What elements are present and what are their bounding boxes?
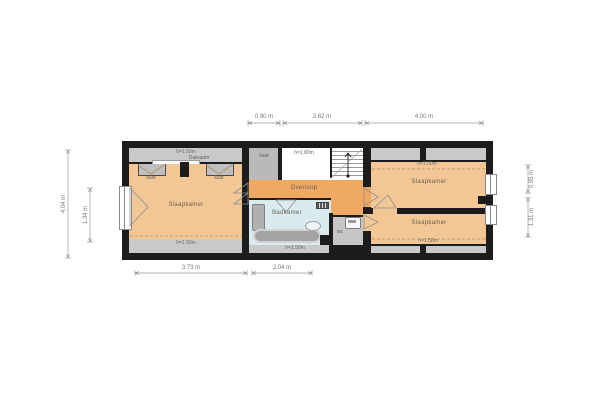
- headroom-left-bottom: h=1.50m: [176, 240, 196, 246]
- headroom-right-top: h=1.50m: [417, 161, 437, 167]
- label-closet-stairs: kast: [259, 153, 268, 159]
- wall-step-bathroom: [320, 235, 333, 245]
- window-right-wall-bottom: [485, 205, 497, 225]
- dim-bottom-1: 3.73 m: [182, 265, 200, 271]
- label-bedroom-bottom-right: Slaapkamer: [411, 220, 446, 226]
- headroom-left-top: h=1.50m: [176, 149, 196, 155]
- door-gap-landing-right: [363, 187, 371, 207]
- label-bathroom: Badkamer: [272, 210, 302, 216]
- underroof-strip-right-bottom-b: [426, 246, 486, 253]
- dim-left-2: 1.34 m: [83, 206, 89, 224]
- underroof-strip-right-top-a: [371, 148, 420, 160]
- headroom-stairs: h=1.80m: [294, 150, 314, 156]
- bathroom-sink: [305, 221, 321, 231]
- dim-top-3: 4.00 m: [415, 114, 433, 120]
- underroof-strip-right-top-b: [426, 148, 486, 160]
- dim-top-2: 2.62 m: [313, 114, 331, 120]
- dim-top-1: 0.90 m: [255, 114, 273, 120]
- label-closet-a: kast: [146, 175, 155, 181]
- dim-bottom-2: 2.04 m: [273, 265, 291, 271]
- window-right-wall-top: [485, 174, 497, 195]
- chimney: [180, 162, 189, 177]
- window-left-wall: [119, 186, 132, 230]
- label-closet-b: kast: [214, 175, 223, 181]
- bathroom-cabinet: [252, 204, 265, 231]
- headroom-bathroom: h=1.50m: [285, 245, 305, 251]
- dim-right-2: 1.31 m: [529, 208, 535, 226]
- radiator-icon: [316, 202, 329, 209]
- label-wc: wc: [337, 229, 343, 235]
- dim-right-1: 0.95 m: [529, 170, 535, 188]
- label-landing: Overloop: [291, 185, 318, 191]
- floorplan-canvas: Slaapkamer Overloop Badkamer Slaapkamer …: [0, 0, 600, 400]
- dim-left-1: 4.04 m: [61, 195, 67, 213]
- underroof-strip-right-bottom-a: [371, 246, 420, 253]
- toilet-icon: [345, 217, 361, 229]
- wall-stub-right-middle: [478, 196, 493, 204]
- door-gap-bedroom-bottom-right: [363, 214, 371, 231]
- staircase: [330, 148, 363, 178]
- headroom-right-bottom: h=1.50m: [418, 238, 438, 244]
- wall-left-middle: [242, 148, 249, 253]
- label-bedroom-top-right: Slaapkamer: [411, 179, 446, 185]
- bathtub: [253, 229, 321, 243]
- label-bedroom-left: Slaapkamer: [168, 202, 203, 208]
- label-dormer: Dakraam: [189, 155, 209, 161]
